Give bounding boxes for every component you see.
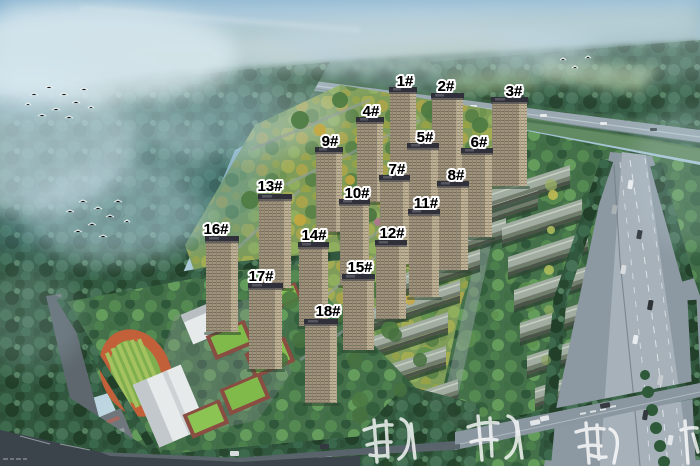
svg-text:12#: 12# xyxy=(379,225,405,242)
svg-text:15#: 15# xyxy=(347,259,373,276)
svg-text:8#: 8# xyxy=(448,167,465,184)
svg-text:5#: 5# xyxy=(417,129,434,146)
svg-text:16#: 16# xyxy=(203,221,229,238)
svg-text:4#: 4# xyxy=(363,103,380,120)
svg-text:9#: 9# xyxy=(322,133,339,150)
svg-text:2#: 2# xyxy=(438,78,455,95)
svg-text:7#: 7# xyxy=(389,161,406,178)
svg-text:11#: 11# xyxy=(414,195,439,212)
svg-text:18#: 18# xyxy=(315,303,341,320)
svg-text:6#: 6# xyxy=(471,134,488,151)
svg-text:17#: 17# xyxy=(248,268,274,285)
svg-text:14#: 14# xyxy=(301,227,327,244)
svg-text:10#: 10# xyxy=(344,185,370,202)
svg-text:3#: 3# xyxy=(506,83,523,100)
svg-text:1#: 1# xyxy=(397,73,414,90)
svg-text:13#: 13# xyxy=(257,178,283,195)
